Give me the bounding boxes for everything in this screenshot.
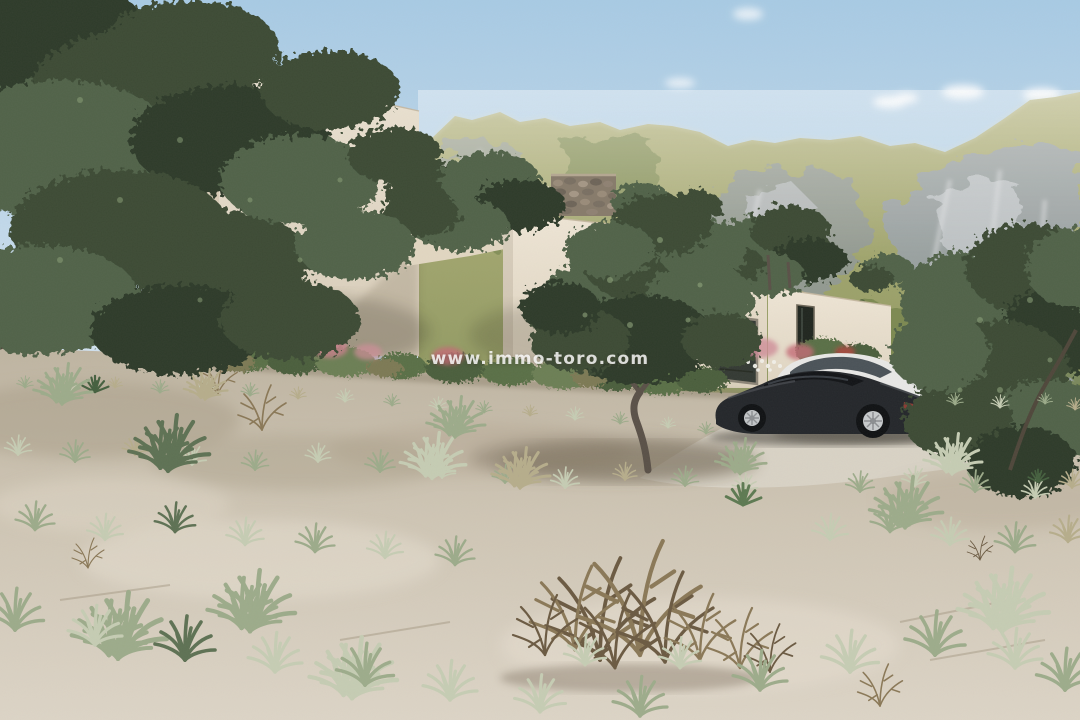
architectural-render: www.immo-toro.com	[0, 0, 1080, 720]
watermark: www.immo-toro.com	[431, 351, 650, 368]
